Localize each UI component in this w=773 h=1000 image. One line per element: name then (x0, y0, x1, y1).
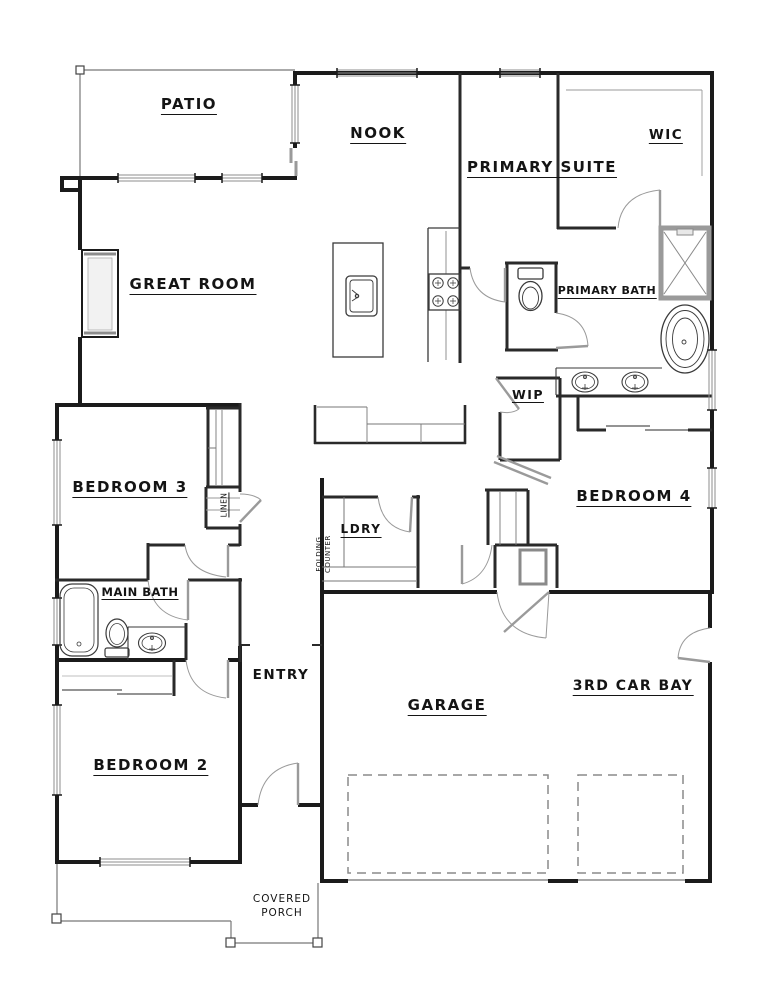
primary-toilet-icon (518, 268, 543, 311)
walk-in-shower-icon (661, 228, 709, 298)
hall-closet-shelving (500, 492, 516, 545)
freestanding-tub-icon (661, 305, 709, 373)
buffet-counter (317, 407, 465, 443)
range-cooktop-icon (428, 228, 460, 362)
room-label-main-bath: MAIN BATH (102, 586, 179, 600)
room-label-great-room: GREAT ROOM (130, 277, 257, 295)
island-sink-icon (346, 276, 377, 316)
label-folding-counter: FOLDING COUNTER (315, 535, 333, 573)
main-bath-toilet-icon (105, 619, 129, 657)
room-label-bedroom2: BEDROOM 2 (93, 758, 208, 776)
label-covered: COVERED (253, 892, 311, 906)
label-folding: FOLDING (315, 535, 324, 573)
main-bath-tub-icon (60, 584, 98, 656)
bedroom2-closet (62, 676, 172, 694)
room-label-primary-bath: PRIMARY BATH (558, 285, 657, 299)
room-label-3rd-car-bay: 3RD CAR BAY (573, 679, 694, 696)
room-label-nook: NOOK (350, 126, 406, 144)
label-porch: PORCH (253, 906, 311, 920)
patio-sliding-door (291, 148, 296, 176)
room-label-entry: ENTRY (253, 668, 310, 683)
kitchen-island (333, 243, 383, 357)
room-label-garage: GARAGE (408, 698, 487, 716)
windows (52, 68, 717, 867)
garage-door-openings (348, 775, 685, 880)
room-label-linen: LINEN (219, 493, 229, 518)
room-label-wic: WIC (649, 128, 683, 144)
patio-outline (76, 66, 295, 178)
label-counter: COUNTER (324, 535, 333, 573)
bay-window (82, 250, 118, 337)
double-vanity-icon (556, 368, 662, 395)
room-label-primary-suite: PRIMARY SUITE (467, 160, 617, 178)
label-covered-porch: COVERED PORCH (253, 892, 311, 920)
room-label-bedroom4: BEDROOM 4 (576, 489, 691, 507)
floor-plan: PATIO NOOK PRIMARY SUITE WIC GREAT ROOM … (0, 0, 773, 1000)
room-label-bedroom3: BEDROOM 3 (72, 480, 187, 498)
room-label-wip: WIP (512, 388, 544, 403)
main-bath-vanity-icon (128, 627, 186, 660)
room-label-laundry: LDRY (341, 523, 382, 538)
bedroom3-wardrobe (208, 410, 222, 485)
laundry-counter (322, 497, 416, 581)
water-heater-icon (520, 550, 546, 584)
room-label-patio: PATIO (161, 97, 217, 115)
bedroom4-closet-sliders (606, 426, 688, 430)
